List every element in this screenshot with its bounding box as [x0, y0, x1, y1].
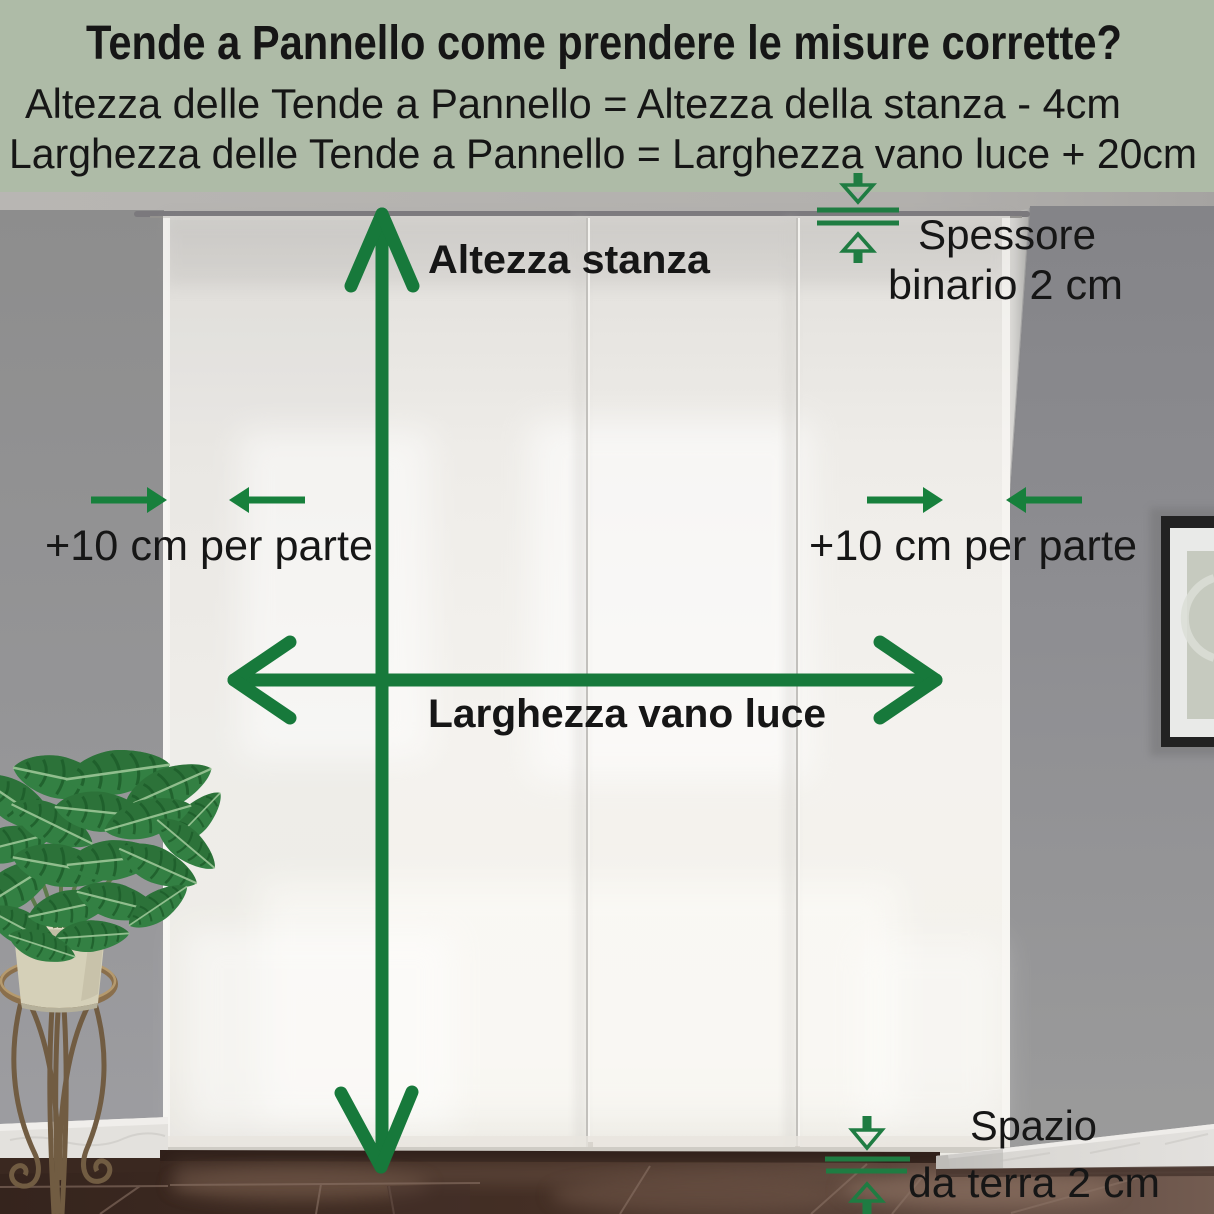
svg-text:Larghezza delle Tende a Pannel: Larghezza delle Tende a Pannello = Largh…: [9, 130, 1197, 177]
svg-text:da terra 2 cm: da terra 2 cm: [908, 1159, 1160, 1206]
svg-text:+10 cm per parte: +10 cm per parte: [45, 522, 373, 570]
svg-text:Altezza stanza: Altezza stanza: [428, 238, 711, 282]
svg-text:Tende a Pannello come prendere: Tende a Pannello come prendere le misure…: [86, 17, 1122, 70]
svg-text:binario 2 cm: binario 2 cm: [888, 261, 1123, 308]
svg-text:Spessore: Spessore: [918, 211, 1096, 258]
svg-text:Larghezza vano luce: Larghezza vano luce: [428, 692, 826, 736]
svg-text:Spazio: Spazio: [970, 1102, 1097, 1149]
svg-text:Altezza delle Tende a Pannello: Altezza delle Tende a Pannello = Altezza…: [25, 80, 1121, 127]
svg-text:+10 cm per parte: +10 cm per parte: [809, 522, 1137, 570]
